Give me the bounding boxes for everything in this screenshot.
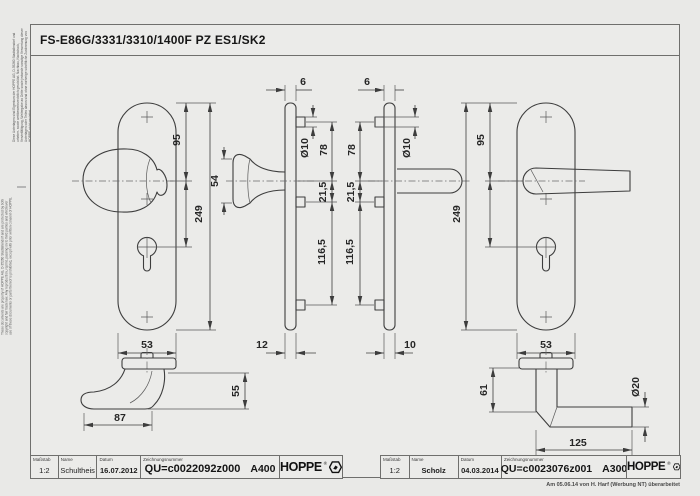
drawing-number-value: QU=c0023076z001 xyxy=(501,463,592,475)
scale-cell: Maßstab 1:2 xyxy=(31,456,58,478)
dim-knob-top-height: 55 xyxy=(230,385,242,397)
registered-mark: ® xyxy=(667,461,670,466)
dim-lever-side-top-to-center: 78 xyxy=(346,144,358,156)
drawing-number-header: Zeichnungsnummer xyxy=(504,457,544,462)
dim-knob-plate-width: 53 xyxy=(141,339,153,351)
dim-knob-side-top-to-center: 78 xyxy=(318,144,330,156)
dim-knob-side-knob-height: 54 xyxy=(209,175,221,187)
dim-knob-top-length: 87 xyxy=(114,412,126,424)
dim-lever-side-boss-span: 116,5 xyxy=(344,239,356,265)
drawing-number-value: QU=c0022092z000 xyxy=(145,463,241,475)
date-cell: Datum 16.07.2012 xyxy=(96,456,140,478)
copyright-note-german: Diese Unterlagen sind Eigentum der HOPPE… xyxy=(13,26,29,142)
revision-code: A300 xyxy=(602,463,627,475)
date-cell: Datum 04.03.2014 xyxy=(458,456,501,478)
name-header: Name xyxy=(61,457,73,462)
name-cell: Name Scholz xyxy=(409,456,458,478)
dim-lever-plate-width: 53 xyxy=(540,339,552,351)
dim-knob-side-center-to-boss: 21,5 xyxy=(317,182,329,202)
name-value: Scholz xyxy=(422,466,446,475)
name-header: Name xyxy=(412,457,424,462)
dim-lever-side-depth: 10 xyxy=(404,339,416,351)
scale-header: Maßstab xyxy=(33,457,51,462)
scale-value: 1:2 xyxy=(390,466,400,475)
date-value: 16.07.2012 xyxy=(100,466,138,475)
drawing-number-cell: Zeichnungsnummer QU=c0023076z001 A300 xyxy=(501,456,626,478)
dim-lever-side-thickness: 6 xyxy=(364,76,370,88)
hoppe-brand-text: HOPPE xyxy=(627,461,665,473)
dim-knob-plate-height: 249 xyxy=(193,205,205,223)
dim-lever-side-center-to-boss: 21,5 xyxy=(345,182,357,202)
dim-knob-side-depth: 12 xyxy=(256,339,268,351)
hoppe-hexagon-icon xyxy=(329,461,342,474)
revision-code: A400 xyxy=(250,463,275,475)
dim-lever-top-grip-dia: Ø20 xyxy=(630,377,642,397)
hoppe-logo: HOPPE ® xyxy=(279,456,342,478)
scale-header: Maßstab xyxy=(383,457,401,462)
hoppe-logo: HOPPE ® xyxy=(626,456,680,478)
dim-lever-plate-height: 249 xyxy=(451,205,463,223)
dim-lever-top-length: 125 xyxy=(569,437,587,449)
drawing-title-row: FS-E86G/3331/3310/1400F PZ ES1/SK2 xyxy=(30,24,680,56)
dim-lever-top-depth: 61 xyxy=(478,384,490,396)
dim-knob-side-thickness: 6 xyxy=(300,76,306,88)
name-value: Schultheis xyxy=(60,466,95,475)
scale-value: 1:2 xyxy=(39,466,49,475)
name-cell: Name Schultheis xyxy=(58,456,97,478)
drawing-number-row: QU=c0022092z000 A400 xyxy=(141,463,279,475)
drawing-title: FS-E86G/3331/3310/1400F PZ ES1/SK2 xyxy=(30,24,680,47)
screenshot-root: { "header": { "title": "FS-E86G/3331/331… xyxy=(0,0,700,496)
revision-note: Am 05.06.14 von H. Harf (Werbung NT) übe… xyxy=(546,482,680,488)
drawing-number-cell: Zeichnungsnummer QU=c0022092z000 A400 xyxy=(140,456,279,478)
hoppe-brand-text: HOPPE xyxy=(280,460,322,474)
scale-cell: Maßstab 1:2 xyxy=(381,456,409,478)
dim-knob-plate-to-center: 95 xyxy=(171,134,183,146)
dim-knob-side-boss-dia: Ø10 xyxy=(299,138,311,158)
hoppe-hexagon-icon xyxy=(673,461,680,473)
dim-lever-plate-to-center: 95 xyxy=(475,134,487,146)
drawing-number-row: QU=c0023076z001 A300 xyxy=(502,463,626,475)
registered-mark: ® xyxy=(324,461,327,466)
date-header: Datum xyxy=(461,457,474,462)
copyright-note-english: These documents are property of HOPPE AG… xyxy=(2,195,15,335)
title-block-left: Maßstab 1:2 Name Schultheis Datum 16.07.… xyxy=(30,455,343,479)
dim-knob-side-boss-span: 116,5 xyxy=(316,239,328,265)
title-block-right: Maßstab 1:2 Name Scholz Datum 04.03.2014… xyxy=(380,455,681,479)
drawing-number-header: Zeichnungsnummer xyxy=(143,457,183,462)
date-header: Datum xyxy=(99,457,112,462)
date-value: 04.03.2014 xyxy=(461,466,499,475)
dim-lever-side-boss-dia: Ø10 xyxy=(401,138,413,158)
